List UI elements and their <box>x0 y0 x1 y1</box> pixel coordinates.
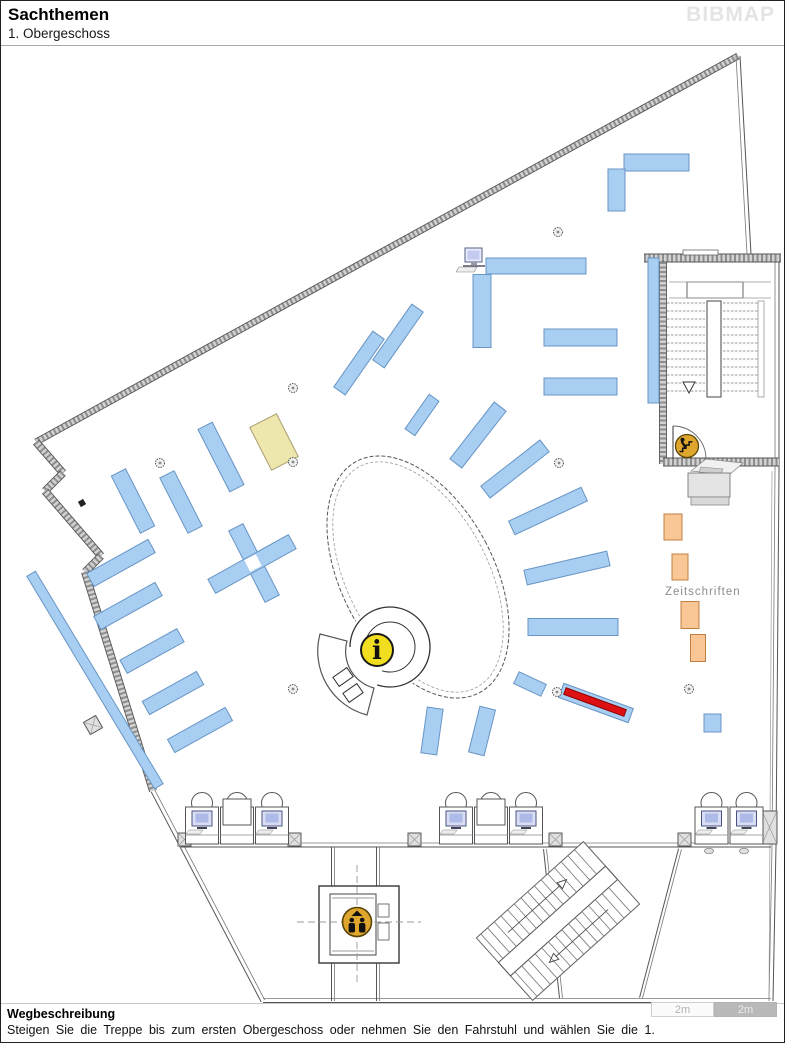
shelf-blue <box>421 707 443 755</box>
shelf-blue <box>608 169 625 211</box>
zeitschriften-label: Zeitschriften <box>665 586 741 598</box>
directions-text: Steigen Sie die Treppe bis zum ersten Ob… <box>7 1023 655 1037</box>
info-icon: i <box>361 634 393 666</box>
shelf-blue <box>111 469 154 533</box>
shelf-blue <box>198 422 244 492</box>
header: Sachthemen 1. Obergeschoss BIBMAP <box>1 1 784 46</box>
shelf-blue <box>473 275 491 348</box>
shelf-blue <box>142 671 203 714</box>
scale-bar: 2m 2m <box>651 1002 779 1017</box>
shelf-blue <box>160 471 202 534</box>
svg-text:i: i <box>372 636 382 666</box>
computer-workstation-group <box>440 793 543 845</box>
shelf-orange <box>672 554 688 580</box>
floor-plan-canvas[interactable]: i Zeitschriften <box>1 46 785 1004</box>
shelf-blue <box>524 551 610 585</box>
shelf-blue <box>648 258 659 403</box>
shelf-blue <box>94 582 162 629</box>
interior-layer <box>83 250 781 1001</box>
shelf-blue <box>450 402 506 468</box>
shelf-blue <box>514 672 547 696</box>
directions-heading: Wegbeschreibung <box>7 1007 115 1021</box>
shelf-blue <box>624 154 689 171</box>
shelf-blue <box>528 619 618 636</box>
shelf-blue <box>704 714 721 732</box>
floor-label: 1. Obergeschoss <box>8 26 110 41</box>
shelf-blue <box>481 440 549 498</box>
shelf-blue <box>469 706 496 755</box>
scale-segment-light: 2m <box>651 1002 714 1017</box>
computer-workstation-group <box>695 793 763 854</box>
computer-icon <box>456 248 485 272</box>
shelf-blue <box>544 329 617 346</box>
elevator-icon <box>343 908 372 937</box>
shelf-orange <box>691 635 706 662</box>
shelf-blue <box>168 707 233 752</box>
shelf-blue <box>405 394 439 435</box>
shelf-orange <box>664 514 682 540</box>
shelf-blue <box>120 629 184 674</box>
shelf-blue <box>486 258 586 274</box>
floor-plan-area: i Zeitschriften <box>1 46 785 1004</box>
stairs-icon <box>676 435 699 458</box>
bibmap-logo: BIBMAP <box>686 3 775 27</box>
shelf-blue <box>544 378 617 395</box>
page-title: Sachthemen <box>8 5 109 25</box>
shelf-orange <box>681 602 699 629</box>
computer-workstation-group <box>186 793 289 845</box>
scale-segment-dark: 2m <box>714 1002 777 1017</box>
bibmap-page: Sachthemen 1. Obergeschoss BIBMAP i Zeit… <box>0 0 785 1043</box>
shelf-blue <box>509 487 588 534</box>
